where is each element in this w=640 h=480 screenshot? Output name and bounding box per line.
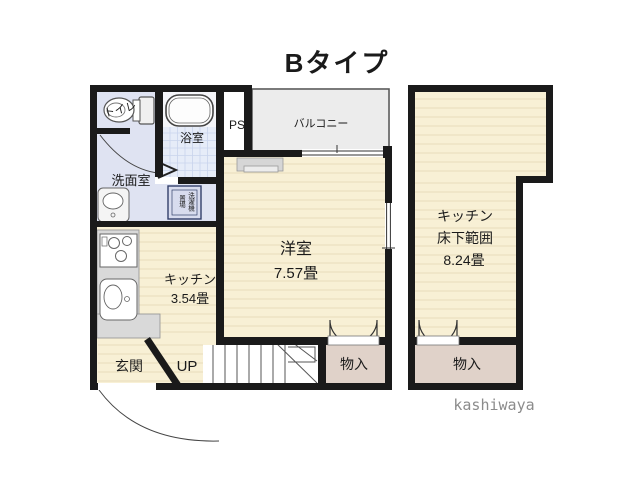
washroom-label: 洗面室 (111, 173, 150, 188)
floor2-kitchen-label: キッチン (437, 208, 493, 224)
closet-label-left-plan: 物入 (340, 356, 368, 372)
closet-door-sill-right-plan (417, 336, 459, 345)
wall-balcony-bottom (216, 150, 302, 157)
kitchen-label: キッチン (164, 272, 216, 287)
wall-f2-notch (516, 176, 553, 183)
kitchen-sink-icon (100, 279, 137, 320)
wall-right-outer (385, 147, 392, 390)
washing-machine-box (168, 186, 201, 219)
floor-plan-canvas: Bタイプ トイレ 浴室 PS バルコニー 洗面室 洗濯機 置場 キッチン 3.5… (0, 0, 640, 480)
wall-toilet-bath (155, 92, 163, 177)
bathtub-icon (166, 95, 213, 126)
pipe-space-label: PS (229, 118, 245, 132)
stove-icon (100, 234, 137, 267)
wall-f2-right-lower (516, 183, 523, 390)
wall-washroom-bottom (90, 221, 216, 227)
wall-ps-left (216, 85, 224, 158)
balcony-label: バルコニー (294, 117, 349, 130)
wall-ps-right (244, 85, 252, 157)
wall-kitchen-room-divider (216, 158, 224, 338)
western-room-size-label: 7.57畳 (274, 265, 318, 282)
entrance-label: 玄関 (115, 358, 143, 374)
wall-f2-bottom (408, 383, 523, 390)
stairs-up-label: UP (177, 358, 198, 375)
entrance-door-opening (98, 383, 156, 390)
wall-f2-right-upper (546, 85, 553, 183)
kitchen-size-label: 3.54畳 (171, 291, 209, 306)
wall-closet-left (318, 345, 326, 383)
wall-f2-top (408, 85, 553, 92)
wall-room-bottom-a (216, 337, 330, 345)
closet-door-sill-left-plan (328, 336, 379, 345)
washbasin-icon (98, 188, 129, 222)
room-counter (237, 158, 283, 172)
bath-label: 浴室 (180, 130, 204, 145)
closet-label-right-plan: 物入 (453, 356, 481, 372)
wall-toilet-bottom (90, 128, 130, 134)
wall-f2-left (408, 85, 415, 390)
floor2-under-floor-label: 床下範囲 (437, 230, 493, 246)
wall-balcony-corner (383, 146, 392, 158)
wall-top-outer (90, 85, 252, 92)
wall-f2-closet-top (457, 337, 516, 345)
plan-title: Bタイプ (285, 48, 390, 78)
western-room-label: 洋室 (280, 240, 312, 258)
floor2-size-label: 8.24畳 (443, 252, 484, 268)
credit-text: kashiwaya (453, 396, 534, 414)
